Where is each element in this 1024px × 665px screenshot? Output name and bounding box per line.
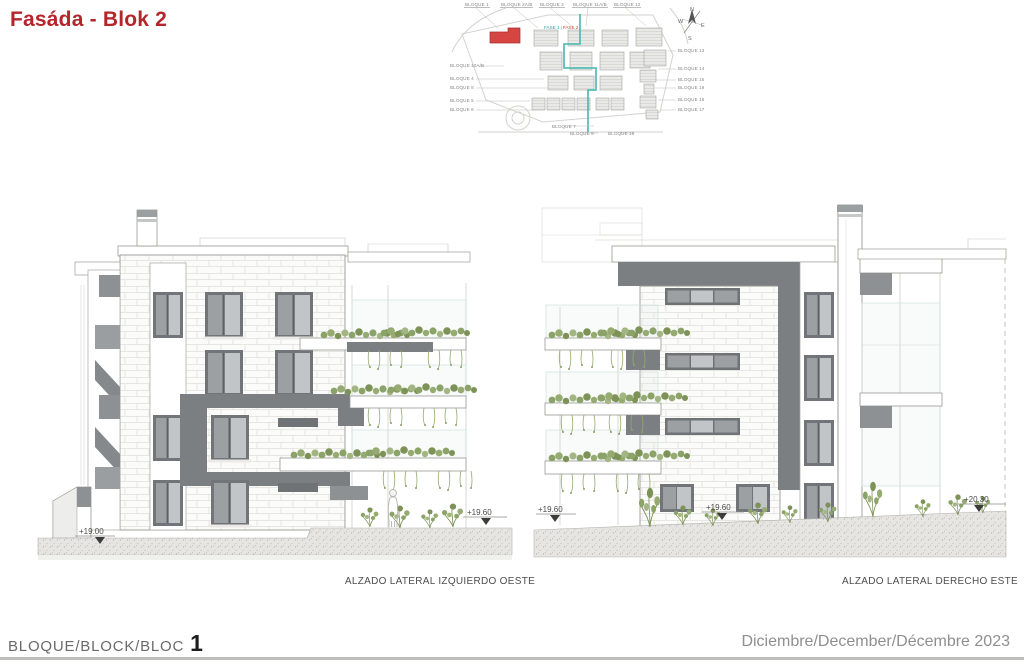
siteplan-highlight-block: [490, 28, 520, 43]
siteplan-label: BLOQUE 5: [450, 98, 474, 103]
siteplan-label: BLOQUE 7: [552, 124, 576, 129]
balcony-glass: [352, 300, 466, 458]
page-title: Fasáda - Blok 2: [10, 8, 167, 32]
siteplan-label: BLOQUE 17: [678, 107, 704, 112]
elevation-right-east: +19.60 +19.60 +20.30: [528, 195, 1012, 570]
siteplan-label: BLOQUE 4: [450, 76, 474, 81]
garden-left: [361, 490, 463, 528]
siteplan-label: BLOQUE 16: [678, 97, 704, 102]
siteplan-fase-label: FASE 1|FASE 2: [544, 25, 578, 30]
footer-date: Diciembre/December/Décembre 2023: [741, 633, 1010, 651]
caption-right-elevation: ALZADO LATERAL DERECHO ESTE: [820, 576, 1024, 587]
level-marker: +19.00: [79, 527, 104, 536]
fase1-label: FASE 1: [544, 25, 560, 30]
level-marker: +19.60: [706, 503, 731, 512]
elevation-right-drawing: +19.60 +19.60 +20.30: [528, 195, 1012, 570]
drawing-sheet: Fasáda - Blok 2: [0, 0, 1024, 665]
siteplan-label: BLOQUE 18: [608, 131, 634, 136]
compass-icon: N E S W: [678, 7, 705, 42]
footer-block-label: BLOQUE/BLOCK/BLOC: [8, 638, 184, 655]
siteplan-label: BLOQUE 11A/B: [572, 2, 608, 8]
level-marker: +19.60: [538, 505, 563, 514]
siteplan-label: BLOQUE 13: [678, 48, 704, 53]
left-annex: [53, 262, 120, 538]
elevation-left-drawing: +19.00 +19.60: [35, 195, 515, 570]
siteplan-buildings: [532, 28, 666, 119]
siteplan-label: BLOQUE 10A/B: [450, 63, 484, 68]
ground-left: [38, 528, 512, 555]
compass-s: S: [688, 36, 692, 42]
footer-block-number: 1: [190, 630, 203, 657]
siteplan-label: BLOQUE 3: [539, 2, 565, 8]
left-roofline: [118, 210, 470, 262]
compass-w: W: [678, 19, 684, 25]
siteplan-label: BLOQUE 15: [678, 77, 704, 82]
right-balconies: [858, 239, 1006, 517]
siteplan-label: BLOQUE 6: [450, 107, 474, 112]
siteplan-label: BLOQUE 1: [464, 2, 490, 8]
siteplan-label: BLOQUE 8: [450, 85, 474, 90]
facade-band-vertical: [778, 262, 800, 490]
siteplan-label: BLOQUE 9: [570, 131, 594, 136]
level-marker: +20.30: [964, 495, 989, 504]
siteplan: N E S W BLOQUE 1 BLOQUE 2A/B BLOQUE 3 BL…: [448, 0, 712, 148]
caption-left-elevation: ALZADO LATERAL IZQUIERDO OESTE: [300, 576, 580, 587]
footer-block-title: BLOQUE/BLOCK/BLOC 1: [8, 630, 203, 657]
siteplan-label: BLOQUE 14: [678, 66, 704, 71]
compass-e: E: [701, 23, 705, 29]
elevation-left-west: +19.00 +19.60: [35, 195, 515, 570]
fase-divider: |: [561, 25, 562, 30]
siteplan-label: BLOQUE 19: [678, 85, 704, 90]
siteplan-drawing: N E S W: [448, 0, 712, 148]
siteplan-label: BLOQUE 12: [613, 2, 641, 8]
compass-n: N: [690, 7, 694, 13]
level-marker: +19.60: [467, 508, 492, 517]
fase2-label: FASE 2: [563, 25, 579, 30]
siteplan-label: BLOQUE 2A/B: [500, 2, 533, 8]
footer-rule: [0, 657, 1024, 660]
